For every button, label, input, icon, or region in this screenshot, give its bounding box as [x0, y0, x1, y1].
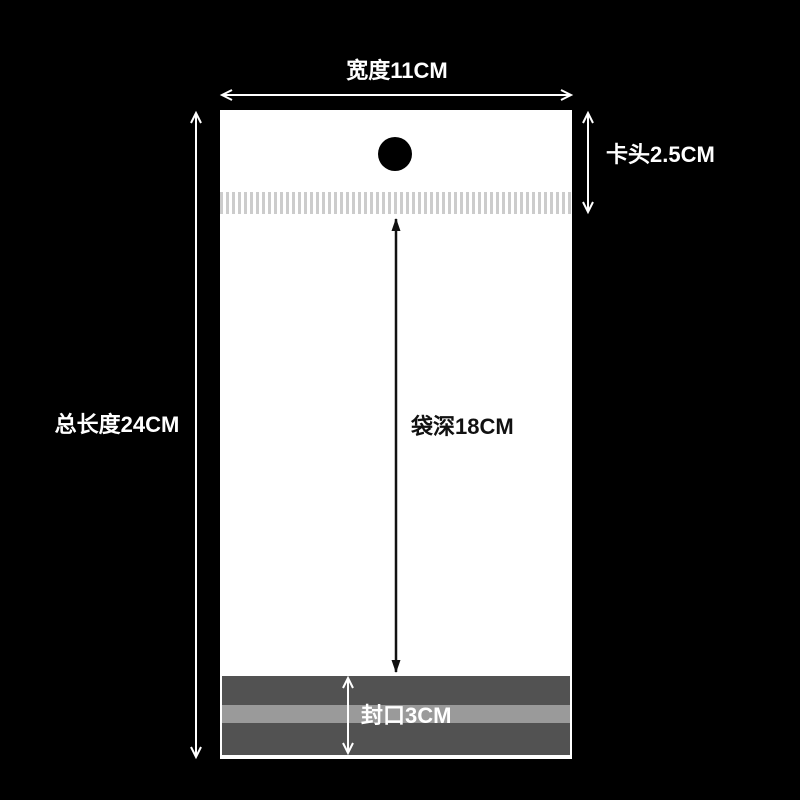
hang-hole — [378, 137, 412, 171]
bag-outline — [220, 110, 572, 759]
seal-label: 封口3CM — [361, 705, 451, 727]
diagram-stage: 宽度11CM 总长度24CM 卡头2.5CM 袋深18CM 封口3CM — [0, 0, 800, 800]
depth-label: 袋深18CM — [411, 416, 514, 438]
total-length-label: 总长度24CM — [55, 414, 180, 436]
adhesive-tear-strip — [220, 192, 572, 214]
header-label: 卡头2.5CM — [606, 144, 715, 166]
width-label: 宽度11CM — [346, 60, 447, 82]
